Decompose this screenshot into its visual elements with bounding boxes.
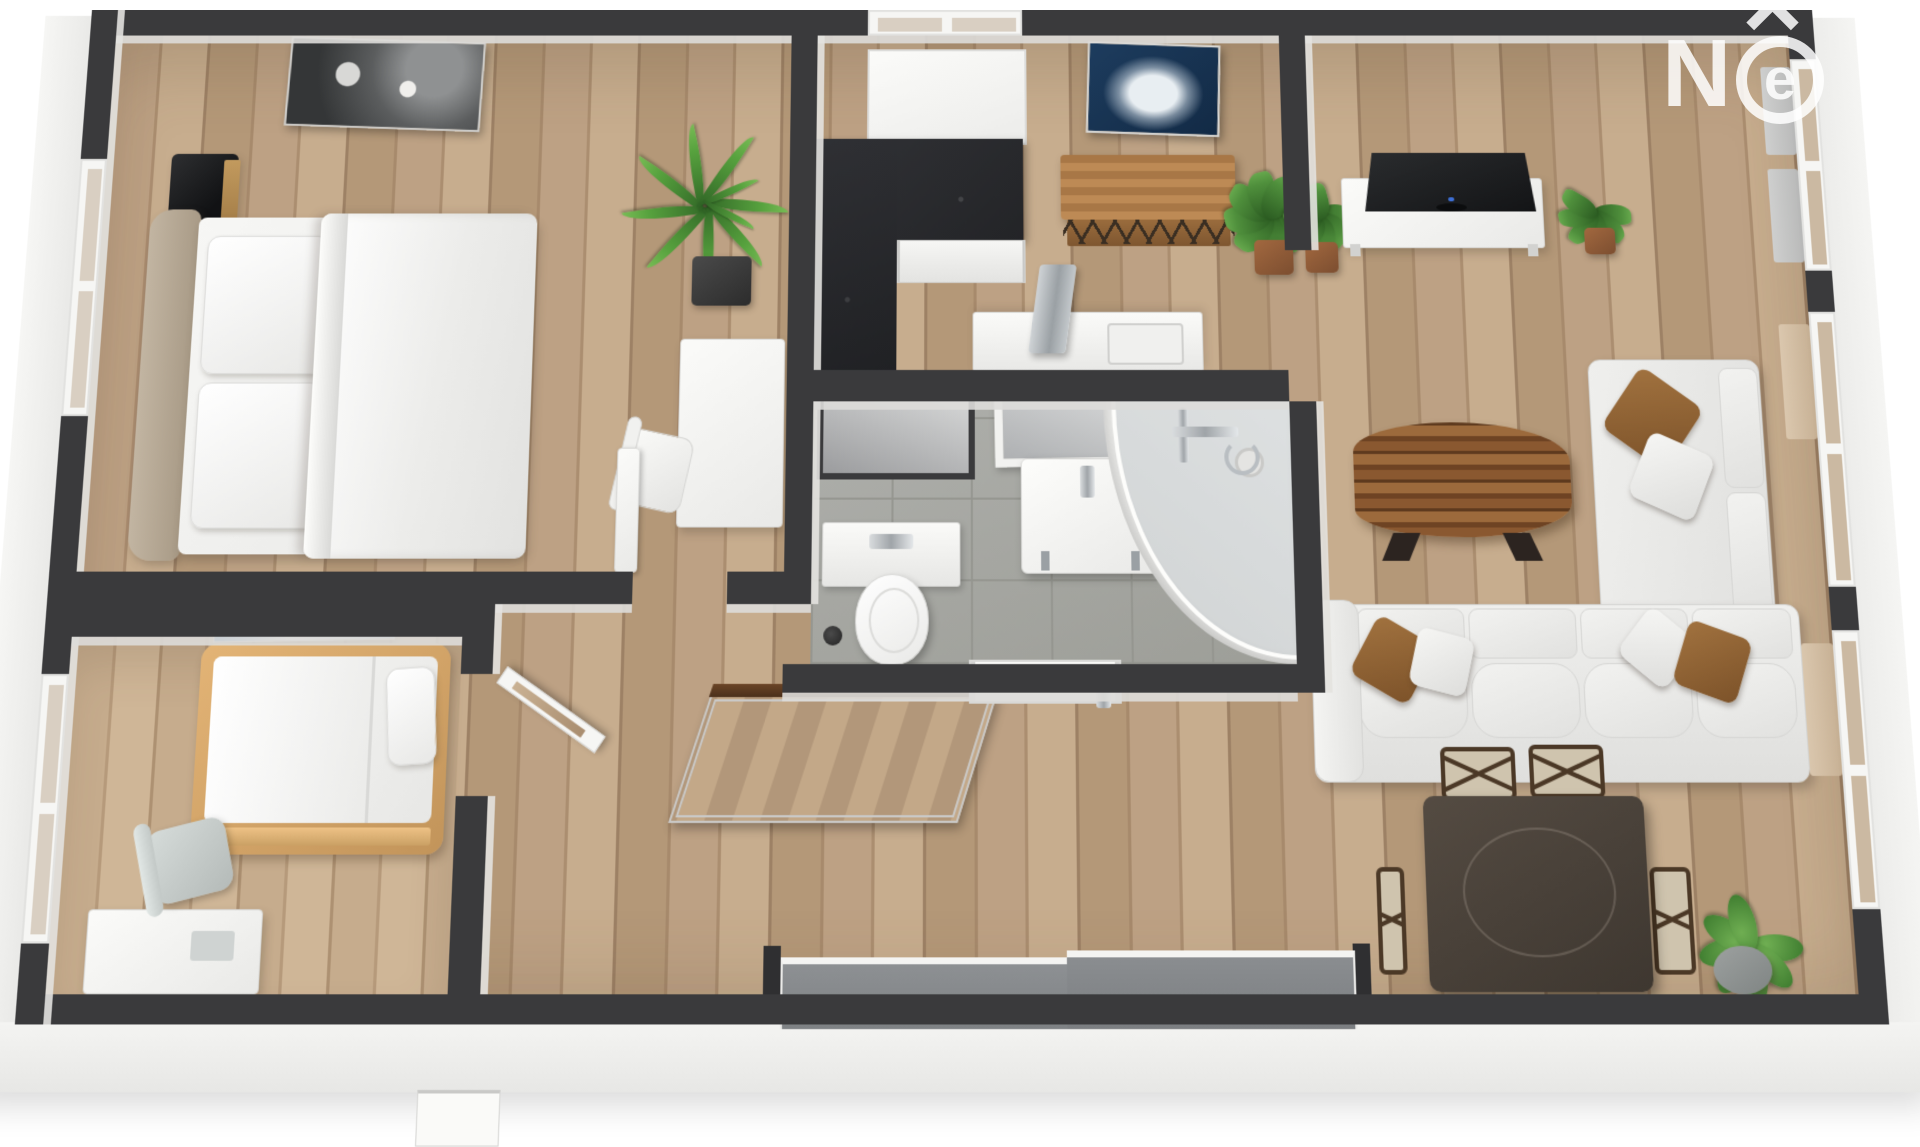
logo-letter-e: e	[1747, 49, 1813, 111]
apartment-plan	[15, 10, 1889, 1024]
outer-wall-bottom	[15, 994, 1889, 1024]
table-inlay	[1460, 828, 1619, 958]
l-shaped-sofa	[1303, 360, 1809, 781]
dining-table	[1423, 796, 1655, 992]
dining-chair	[1376, 867, 1408, 975]
flush-panel	[869, 534, 913, 549]
plant-pot	[691, 256, 751, 305]
wood-console-table	[1060, 155, 1237, 254]
logo-circle: e	[1736, 36, 1824, 124]
console-leg	[1528, 244, 1539, 256]
shower-hose	[1224, 439, 1260, 475]
wall-bedroom1-bottom-a	[74, 572, 633, 604]
exterior-bottom-face	[0, 1022, 1920, 1092]
sink-leg	[1041, 551, 1050, 570]
bedroom2-desk	[82, 909, 263, 994]
wall-bedroom1-bottom-b	[727, 572, 812, 604]
dracaena-plant	[630, 105, 787, 312]
plan-perspective-wrap	[9, 10, 1894, 1097]
shower-fixture	[1171, 408, 1256, 478]
navy-abstract-art	[1086, 41, 1221, 137]
sink-basin	[1107, 323, 1184, 365]
sofa-back-cushion	[1468, 608, 1578, 658]
leaning-floor-mirror	[668, 694, 997, 823]
tv-stand	[1436, 203, 1467, 211]
desk-item	[190, 931, 235, 961]
dining-chair	[1528, 745, 1605, 799]
chaise-back-cushion	[1717, 368, 1764, 488]
kitchen-sink-counter	[973, 312, 1204, 372]
toilet-brush	[823, 626, 842, 646]
tv-led	[1448, 197, 1454, 201]
flat-screen-tv	[1363, 153, 1536, 212]
kitchen-window	[868, 10, 1022, 36]
living-plant-right	[1556, 161, 1639, 258]
console-top	[1060, 155, 1236, 220]
pillow-bottom	[190, 382, 323, 528]
double-bed	[127, 209, 538, 560]
wall-kitchen-living	[1279, 36, 1312, 251]
bed-pillow	[386, 666, 437, 767]
logo-letter-n: N	[1662, 26, 1731, 122]
kitchen-backsplash-window	[867, 49, 1027, 145]
sofa-seat-cushion	[1470, 663, 1582, 738]
watermark-logo: N e	[1662, 8, 1892, 128]
wall-bedroom2-right-b	[448, 796, 488, 994]
wall-bedroom2-top	[72, 604, 495, 637]
sink-faucet	[1080, 466, 1095, 498]
kitchen-cabinet-fronts	[897, 240, 1026, 283]
abstract-wall-art	[284, 36, 486, 132]
console-x-frame	[1063, 220, 1235, 244]
wall-bathroom-bottom	[782, 664, 1297, 693]
wall-hung-toilet	[855, 574, 929, 665]
bedroom1-open-door-leaf	[614, 448, 640, 573]
console-leg	[1350, 244, 1361, 256]
toilet-seat	[869, 588, 920, 653]
fiddle-leaf-plant	[1683, 891, 1829, 997]
exterior-vent	[415, 1090, 501, 1147]
chaise-back-cushion	[1726, 492, 1774, 615]
floor-plan-scene: N e	[0, 0, 1920, 1080]
pillow-top	[200, 236, 331, 374]
wall-kitchen-bottom	[813, 370, 1289, 401]
wall-bedroom2-right-a	[461, 604, 495, 674]
sink-leg	[1131, 551, 1140, 570]
plant-pot	[1584, 228, 1616, 255]
shower-arm	[1172, 427, 1239, 438]
kitchen-counter-left	[814, 139, 898, 370]
dining-chair	[1440, 747, 1517, 801]
